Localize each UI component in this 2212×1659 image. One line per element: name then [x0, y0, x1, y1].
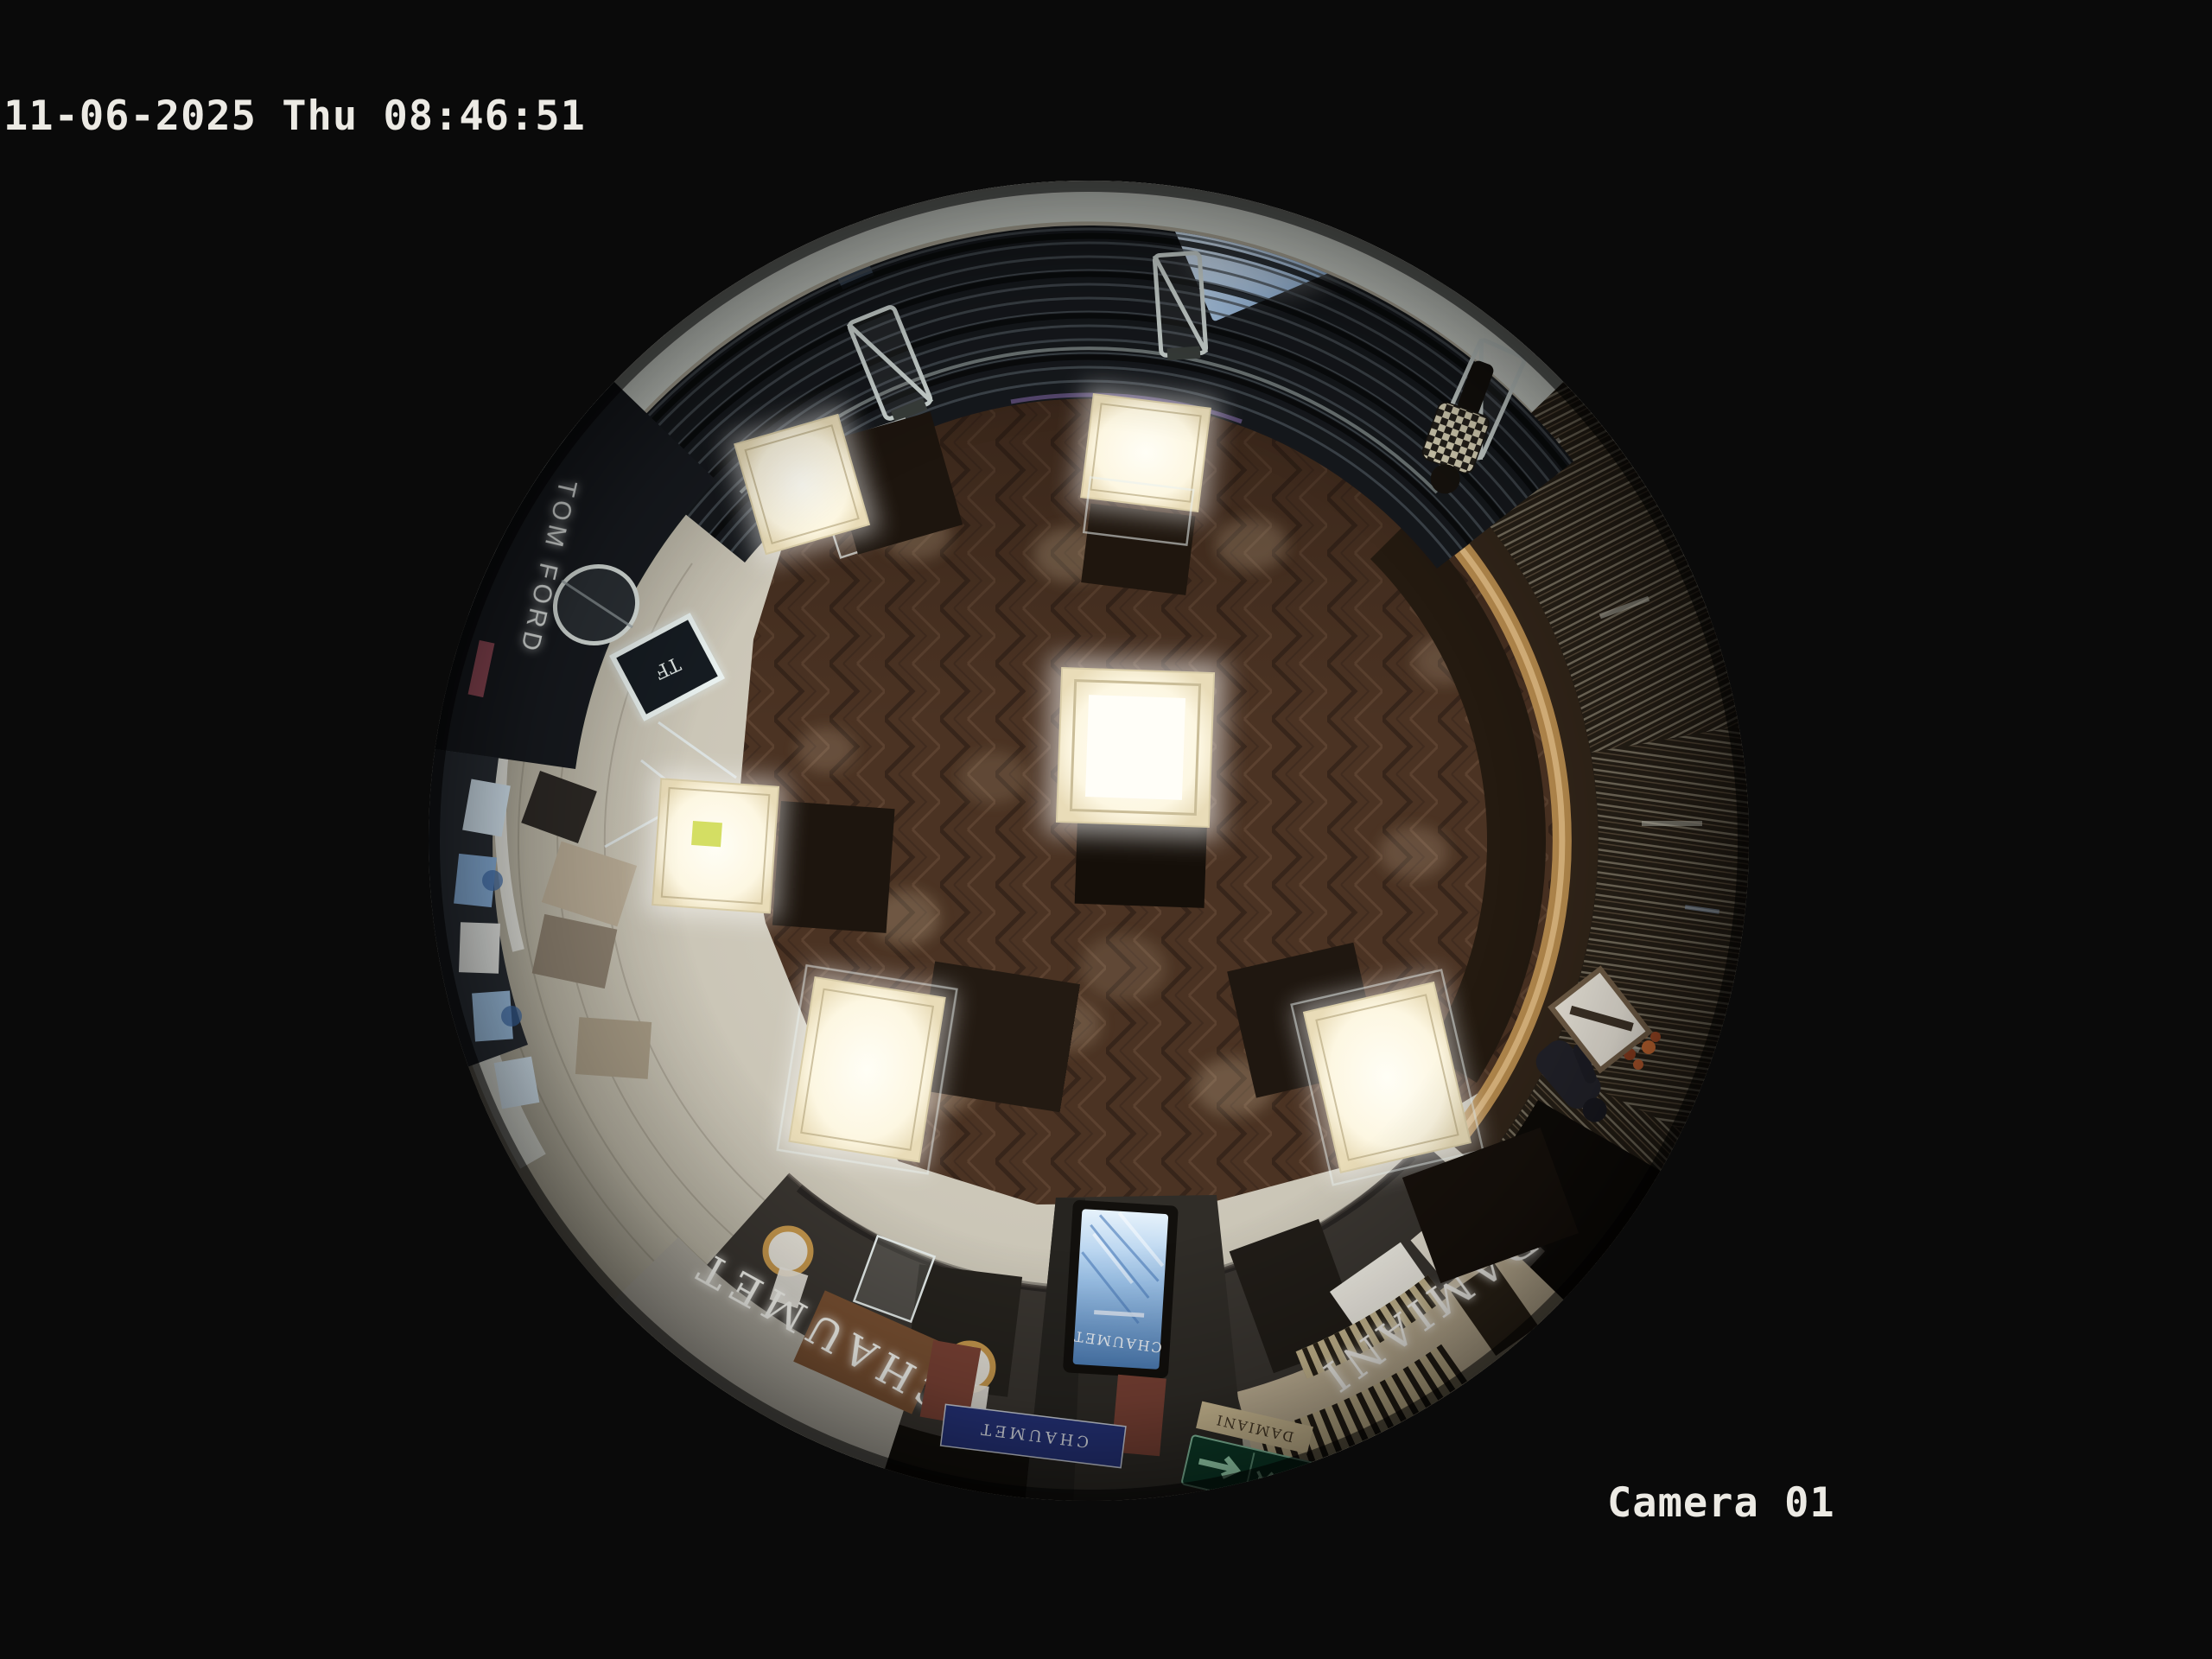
camera-view: TOM FORD TF: [0, 0, 2212, 1659]
cctv-frame: TOM FORD TF: [0, 0, 2212, 1659]
camera-label-osd: Camera 01: [1607, 1479, 1835, 1527]
timestamp-osd: 11-06-2025 Thu 08:46:51: [3, 92, 586, 140]
